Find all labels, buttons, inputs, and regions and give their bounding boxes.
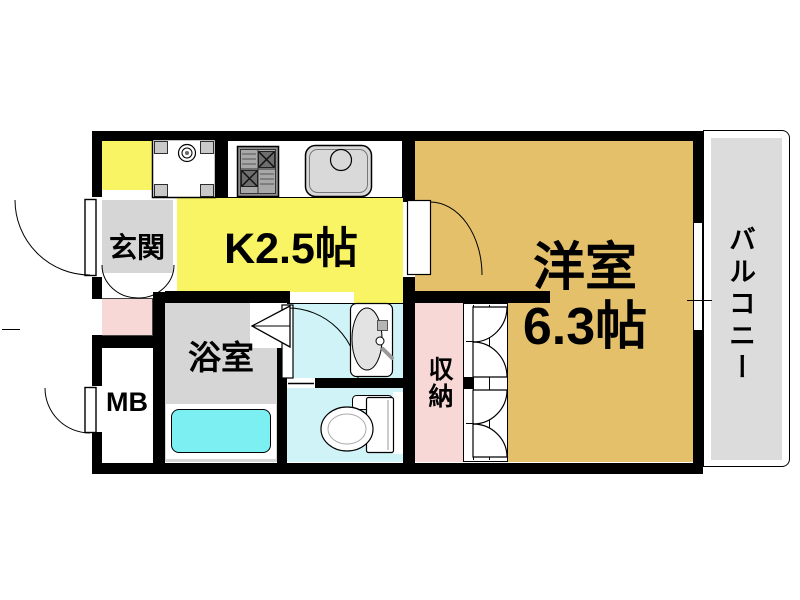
toilet-room-floor: [287, 388, 403, 462]
wall-below-shoe-cabinet: [92, 336, 165, 348]
bathroom-label: 浴室: [165, 340, 277, 376]
wall-top: [92, 131, 703, 141]
storage-label: 収納: [424, 352, 452, 414]
mb-door: [45, 388, 96, 434]
meter-box-label: MB: [101, 388, 153, 418]
wall-kitchen-west-upper: [403, 141, 415, 202]
wall-kitchen-west-lower: [403, 277, 415, 463]
floor-plan: 玄関 K2.5帖 洋室 6.3帖 バルコニー 浴室 MB 収納: [0, 0, 800, 600]
wall-closet-mid-stub: [463, 377, 473, 389]
western-room-label: 洋室: [455, 240, 715, 297]
wall-bathroom-top: [165, 291, 290, 303]
kitchen-doorway: [403, 202, 415, 277]
kitchen-counter: [227, 139, 403, 198]
left-window: [2, 299, 102, 336]
kitchen-label: K2.5帖: [180, 226, 402, 273]
entrance-door: [15, 200, 96, 276]
wall-bathroom-right: [277, 348, 287, 463]
kitchen-floor-annex: [101, 139, 152, 190]
washroom-floor: [287, 303, 403, 378]
wall-bottom: [92, 463, 703, 474]
wall-toilet-top: [315, 378, 403, 388]
wall-mb-right: [153, 292, 165, 463]
western-room-size-label: 6.3帖: [455, 299, 715, 356]
left-window-gap: [92, 298, 102, 336]
shoe-cabinet: [101, 298, 153, 336]
wall-counter-stub: [216, 133, 227, 198]
balcony-label: バルコニー: [722, 212, 754, 397]
washroom-doorway: [290, 292, 354, 303]
washing-machine-pan: [153, 140, 216, 198]
entrance-label: 玄関: [101, 233, 173, 264]
bathtub: [171, 409, 271, 453]
